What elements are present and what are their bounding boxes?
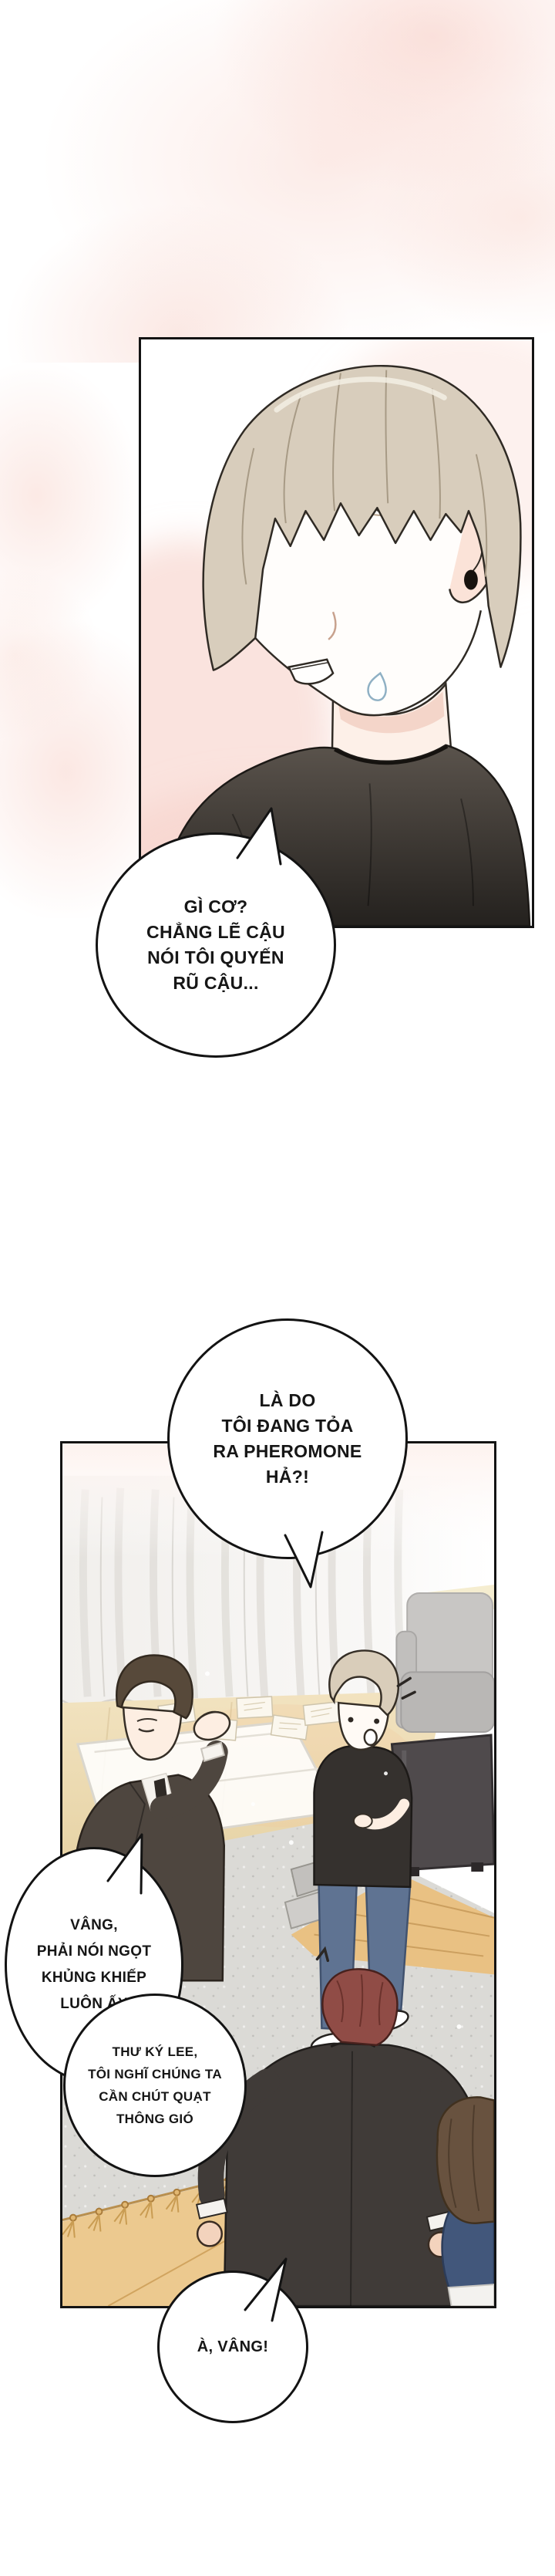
bubble-line: RŨ CẬU... — [173, 971, 258, 996]
woman-pants — [449, 2284, 494, 2306]
bubble-line: PHẢI NÓI NGỌT — [37, 1939, 152, 1965]
bubble-line: GÌ CƠ? — [184, 894, 248, 920]
president-open-mouth — [365, 1730, 377, 1745]
sofa — [396, 1593, 494, 1732]
speech-bubble-gi-co: GÌ CƠ? CHẲNG LẼ CẬU NÓI TÔI QUYẾN RŨ CẬU… — [96, 832, 336, 1058]
comic-page: GÌ CƠ? CHẲNG LẼ CẬU NÓI TÔI QUYẾN RŨ CẬU… — [0, 0, 555, 2576]
bubble-line: THÔNG GIÓ — [116, 2108, 193, 2130]
bubble-line: HẢ?! — [266, 1464, 309, 1490]
bubble-line: CHẲNG LẼ CẬU — [146, 920, 285, 945]
bubble-line: CẦN CHÚT QUẠT — [99, 2085, 211, 2108]
speech-bubble-thu-ky-lee: THƯ KÝ LEE, TÔI NGHĨ CHÚNG TA CẦN CHÚT Q… — [63, 1994, 247, 2177]
bubble-line: KHỦNG KHIẾP — [42, 1965, 146, 1991]
bubble-line: THƯ KÝ LEE, — [113, 2041, 198, 2063]
pink-watercolor-left — [0, 332, 146, 918]
bubble-line: TÔI NGHĨ CHÚNG TA — [88, 2063, 222, 2085]
redhead-hair — [322, 1969, 397, 2045]
bubble-line: TÔI ĐANG TỎA — [222, 1413, 354, 1439]
pink-watercolor-top — [0, 0, 555, 363]
president-hand — [354, 1814, 372, 1828]
speech-bubble-pheromone: LÀ DO TÔI ĐANG TỎA RA PHEROMONE HẢ?! — [167, 1318, 408, 1559]
bubble-line: NÓI TÔI QUYẾN — [147, 945, 284, 971]
woman-hair — [437, 2097, 494, 2223]
speech-bubble-a-vang: À, VÂNG! — [157, 2270, 308, 2423]
bubble-line: VÂNG, — [70, 1913, 118, 1939]
bubble-line: À, VÂNG! — [197, 2336, 268, 2358]
bubble-line: LÀ DO — [259, 1388, 315, 1413]
redhead-hand-left — [197, 2222, 222, 2247]
woman-character — [437, 2097, 494, 2306]
bubble-line: RA PHEROMONE — [213, 1439, 362, 1464]
